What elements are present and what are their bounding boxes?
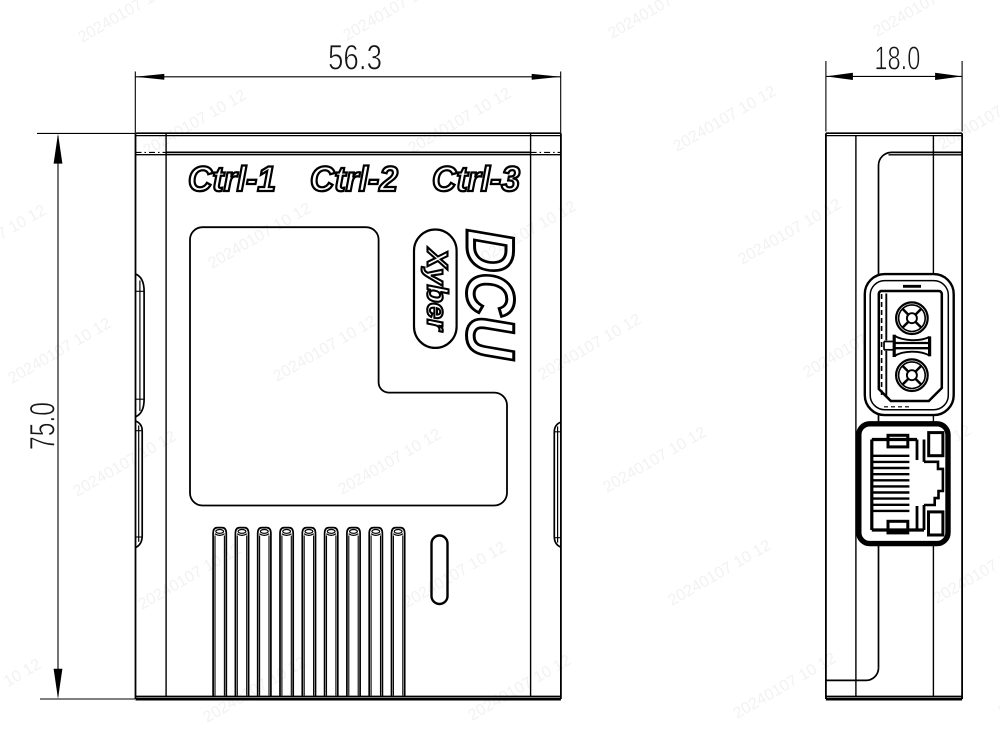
- svg-text:Ctrl-3: Ctrl-3: [432, 160, 521, 199]
- svg-text:Ctrl-1: Ctrl-1: [188, 160, 276, 199]
- svg-text:56.3: 56.3: [328, 39, 382, 78]
- svg-text:75.0: 75.0: [23, 402, 62, 450]
- svg-text:18.0: 18.0: [874, 39, 920, 76]
- svg-text:Ctrl-2: Ctrl-2: [310, 160, 399, 199]
- svg-text:Xyber: Xyber: [421, 246, 453, 332]
- svg-text:DCU: DCU: [452, 229, 528, 361]
